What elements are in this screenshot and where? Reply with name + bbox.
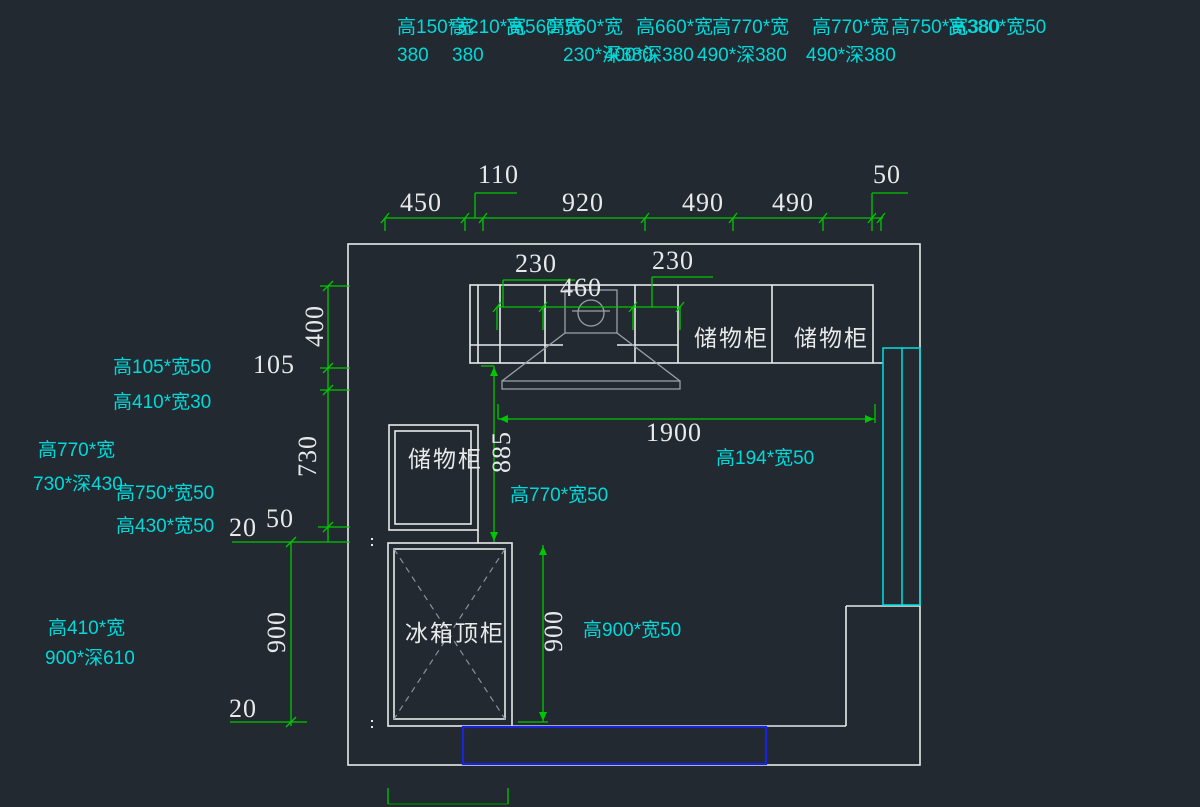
spec-text-22: 高410*宽 (48, 619, 125, 638)
spec-text-6: 高770*宽 (712, 18, 789, 37)
spec-text-26: 高900*宽50 (583, 621, 681, 640)
dim-460: 460 (560, 275, 602, 301)
dim-230-right: 230 (652, 248, 694, 274)
spec-text-25: 高194*宽50 (716, 449, 814, 468)
cabinet-label-storage-2: 储物柜 (794, 327, 869, 350)
spec-text-15: 490*深380 (806, 46, 896, 65)
spec-text-20: 高750*宽50 (116, 484, 214, 503)
dim-730: 730 (295, 435, 321, 477)
drawing-labels: 高150*宽高210*宽高560*宽高560*宽高660*宽高770*宽高770… (0, 0, 1200, 807)
dim-490-a: 490 (682, 190, 724, 216)
dim-490-b: 490 (772, 190, 814, 216)
spec-text-14: 490*深380 (697, 46, 787, 65)
cad-drawing-canvas[interactable]: 高150*宽高210*宽高560*宽高560*宽高660*宽高770*宽高770… (0, 0, 1200, 807)
spec-text-19: 730*深430 (33, 475, 123, 494)
spec-text-16: 高105*宽50 (113, 358, 211, 377)
dim-920: 920 (562, 190, 604, 216)
dim-230-left: 230 (515, 251, 557, 277)
dim-885: 885 (489, 431, 515, 473)
spec-text-11: 380 (452, 46, 484, 65)
spec-text-21: 高430*宽50 (116, 517, 214, 536)
dim-450: 450 (400, 190, 442, 216)
dim-110: 110 (478, 162, 519, 188)
dim-20-lower: 20 (229, 696, 257, 722)
dim-20-upper: 20 (229, 515, 257, 541)
spec-text-7: 高770*宽 (812, 18, 889, 37)
spec-text-23: 900*深610 (45, 649, 135, 668)
dim-900-right: 900 (541, 610, 567, 652)
spec-text-18: 高770*宽 (38, 441, 115, 460)
spec-text-4: 高560*宽 (546, 18, 623, 37)
dim-50-left: 50 (266, 506, 294, 532)
dim-1900: 1900 (646, 420, 702, 446)
dim-50-top: 50 (873, 162, 901, 188)
spec-text-24: 高770*宽50 (510, 486, 608, 505)
spec-text-10: 380 (397, 46, 429, 65)
spec-text-13: 400*深380 (604, 46, 694, 65)
dim-105: 105 (253, 352, 295, 378)
cabinet-label-storage-1: 储物柜 (694, 327, 769, 350)
dim-900-left: 900 (264, 611, 290, 653)
spec-text-9: 高380*宽50 (948, 18, 1046, 37)
spec-text-5: 高660*宽 (636, 18, 713, 37)
cabinet-label-fridge-top: 冰箱顶柜 (405, 622, 505, 645)
dim-400: 400 (302, 305, 328, 347)
spec-text-17: 高410*宽30 (113, 393, 211, 412)
cabinet-label-storage-3: 储物柜 (408, 448, 483, 471)
